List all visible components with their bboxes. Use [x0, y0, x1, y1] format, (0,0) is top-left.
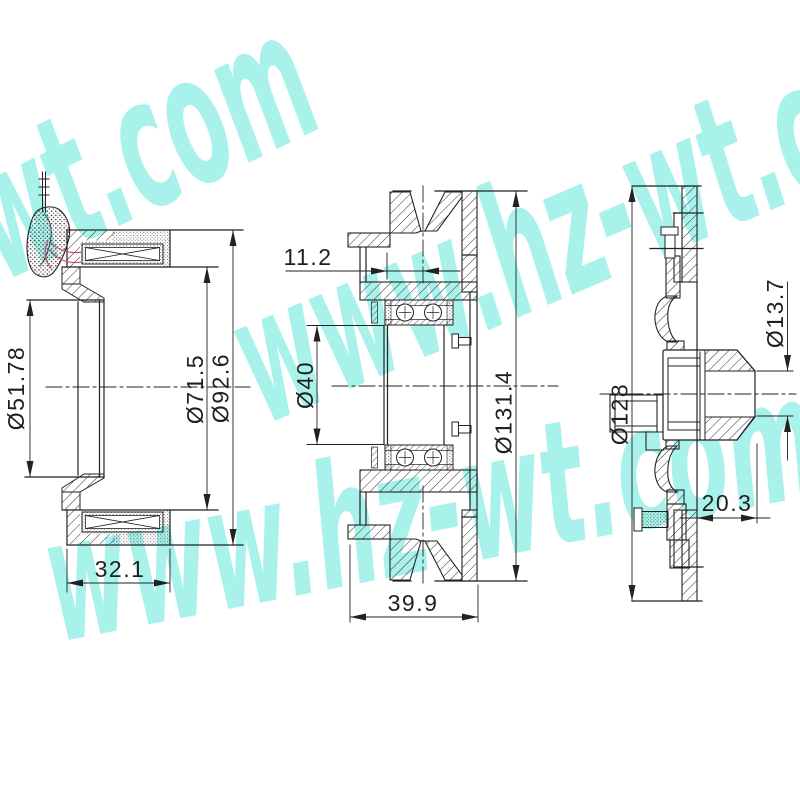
- dim-coil-outer-dia: Ø92.6: [208, 353, 234, 423]
- engineering-drawing-page: www.hz-wt.com www.hz-wt.com www.hz-wt.co…: [0, 0, 800, 800]
- dim-bearing-bore: Ø40: [292, 361, 318, 409]
- drawing-canvas: www.hz-wt.com www.hz-wt.com www.hz-wt.co…: [0, 0, 800, 800]
- dim-coil-bore: Ø51.78: [3, 346, 29, 430]
- dim-hub-depth: 20.3: [702, 490, 753, 516]
- dim-groove-offset: 11.2: [283, 244, 332, 270]
- dim-pulley-outer-dia: Ø131.4: [491, 370, 517, 454]
- dim-coil-width: 32.1: [95, 556, 146, 582]
- dim-shaft-dia: Ø13.7: [762, 278, 788, 348]
- dim-hub-outer-dia: Ø128: [607, 383, 633, 445]
- dim-coil-inner-dia: Ø71.5: [182, 354, 208, 424]
- hub-boss: [663, 350, 755, 440]
- dim-pulley-width: 39.9: [388, 590, 439, 616]
- damper-stud: [634, 508, 668, 531]
